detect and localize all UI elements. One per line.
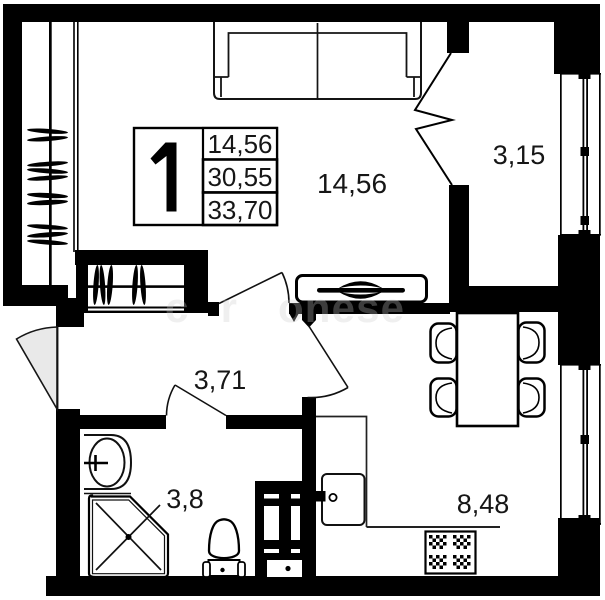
svg-text:8,48: 8,48 xyxy=(457,489,510,519)
svg-text:30,55: 30,55 xyxy=(207,162,272,192)
svg-text:onese: onese xyxy=(278,284,404,331)
svg-text:3,15: 3,15 xyxy=(493,140,546,170)
svg-text:3,8: 3,8 xyxy=(166,484,204,514)
svg-text:14,56: 14,56 xyxy=(207,129,272,159)
svg-text:3,71: 3,71 xyxy=(194,365,247,395)
svg-text:33,70: 33,70 xyxy=(207,195,272,225)
svg-text:14,56: 14,56 xyxy=(317,168,387,199)
